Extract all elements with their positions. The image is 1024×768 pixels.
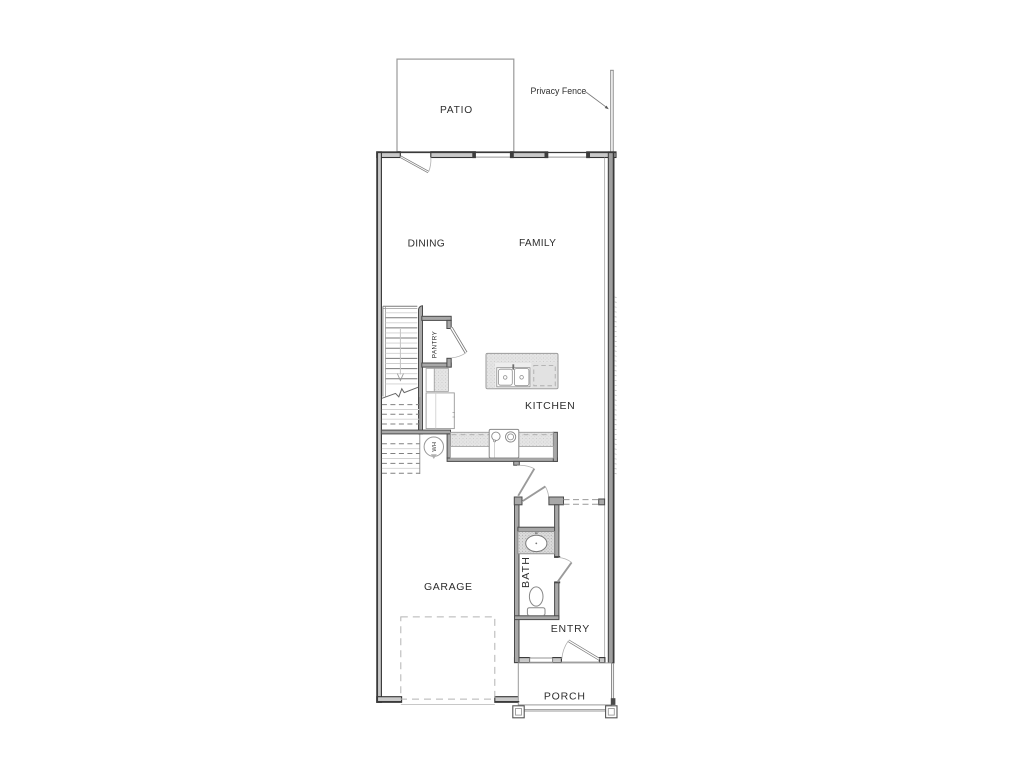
svg-text:ENTRY: ENTRY bbox=[551, 623, 590, 635]
svg-text:DINING: DINING bbox=[408, 239, 445, 250]
svg-text:WH: WH bbox=[432, 442, 438, 452]
svg-text:PORCH: PORCH bbox=[544, 691, 586, 703]
svg-text:GARAGE: GARAGE bbox=[424, 581, 473, 593]
svg-text:Privacy Fence: Privacy Fence bbox=[531, 86, 587, 96]
svg-text:KITCHEN: KITCHEN bbox=[525, 400, 575, 412]
svg-text:PATIO: PATIO bbox=[440, 105, 473, 116]
svg-text:BATH: BATH bbox=[520, 556, 532, 588]
svg-text:FAMILY: FAMILY bbox=[519, 238, 556, 249]
svg-text:PANTRY: PANTRY bbox=[432, 330, 439, 358]
